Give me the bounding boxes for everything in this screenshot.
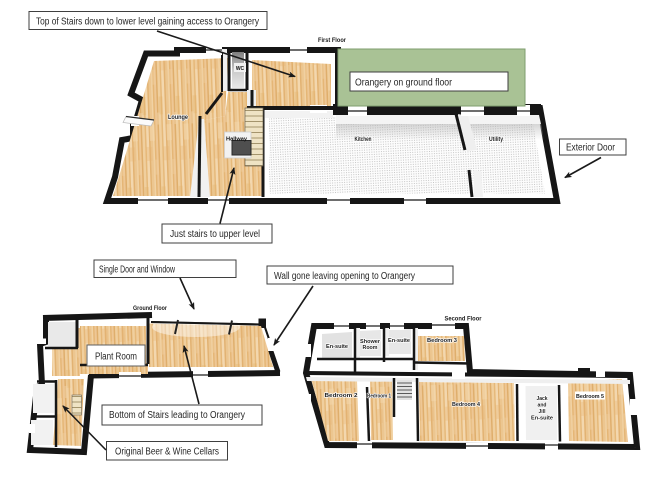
svg-text:Jack: Jack bbox=[536, 396, 547, 402]
svg-text:Bedroom 2: Bedroom 2 bbox=[325, 393, 358, 399]
svg-text:Exterior Door: Exterior Door bbox=[566, 143, 616, 154]
svg-text:Utility: Utility bbox=[489, 137, 504, 143]
svg-text:Second Floor: Second Floor bbox=[445, 316, 482, 323]
svg-text:Bedroom 5: Bedroom 5 bbox=[576, 394, 604, 400]
svg-text:and: and bbox=[538, 403, 547, 409]
svg-text:Jill: Jill bbox=[539, 409, 547, 415]
svg-text:Bedroom 4: Bedroom 4 bbox=[452, 402, 481, 408]
svg-text:Just stairs to upper level: Just stairs to upper level bbox=[170, 229, 260, 240]
svg-text:WC: WC bbox=[236, 66, 245, 72]
svg-text:Bottom of Stairs leading to Or: Bottom of Stairs leading to Orangery bbox=[109, 410, 245, 421]
svg-text:Wall gone leaving opening to O: Wall gone leaving opening to Orangery bbox=[274, 271, 415, 282]
svg-text:En-suite: En-suite bbox=[326, 344, 348, 350]
svg-text:Kitchen: Kitchen bbox=[355, 137, 372, 143]
svg-text:Lounge: Lounge bbox=[168, 115, 189, 121]
svg-text:Orangery on ground floor: Orangery on ground floor bbox=[355, 78, 453, 89]
svg-text:First Floor: First Floor bbox=[318, 37, 346, 44]
svg-text:Single Door and Window: Single Door and Window bbox=[99, 265, 176, 276]
svg-text:Plant Room: Plant Room bbox=[95, 352, 137, 363]
svg-text:Bedroom 3: Bedroom 3 bbox=[427, 338, 457, 344]
svg-text:En-suite: En-suite bbox=[531, 416, 553, 422]
svg-text:Bedroom 1: Bedroom 1 bbox=[367, 394, 391, 400]
svg-text:Ground Floor: Ground Floor bbox=[133, 305, 167, 312]
svg-text:Hallway: Hallway bbox=[226, 137, 247, 143]
svg-text:En-suite: En-suite bbox=[388, 338, 410, 344]
svg-text:Original Beer & Wine Cellars: Original Beer & Wine Cellars bbox=[115, 447, 219, 458]
svg-text:Top of Stairs down to lower le: Top of Stairs down to lower level gainin… bbox=[36, 17, 259, 28]
svg-text:Room: Room bbox=[363, 345, 379, 351]
